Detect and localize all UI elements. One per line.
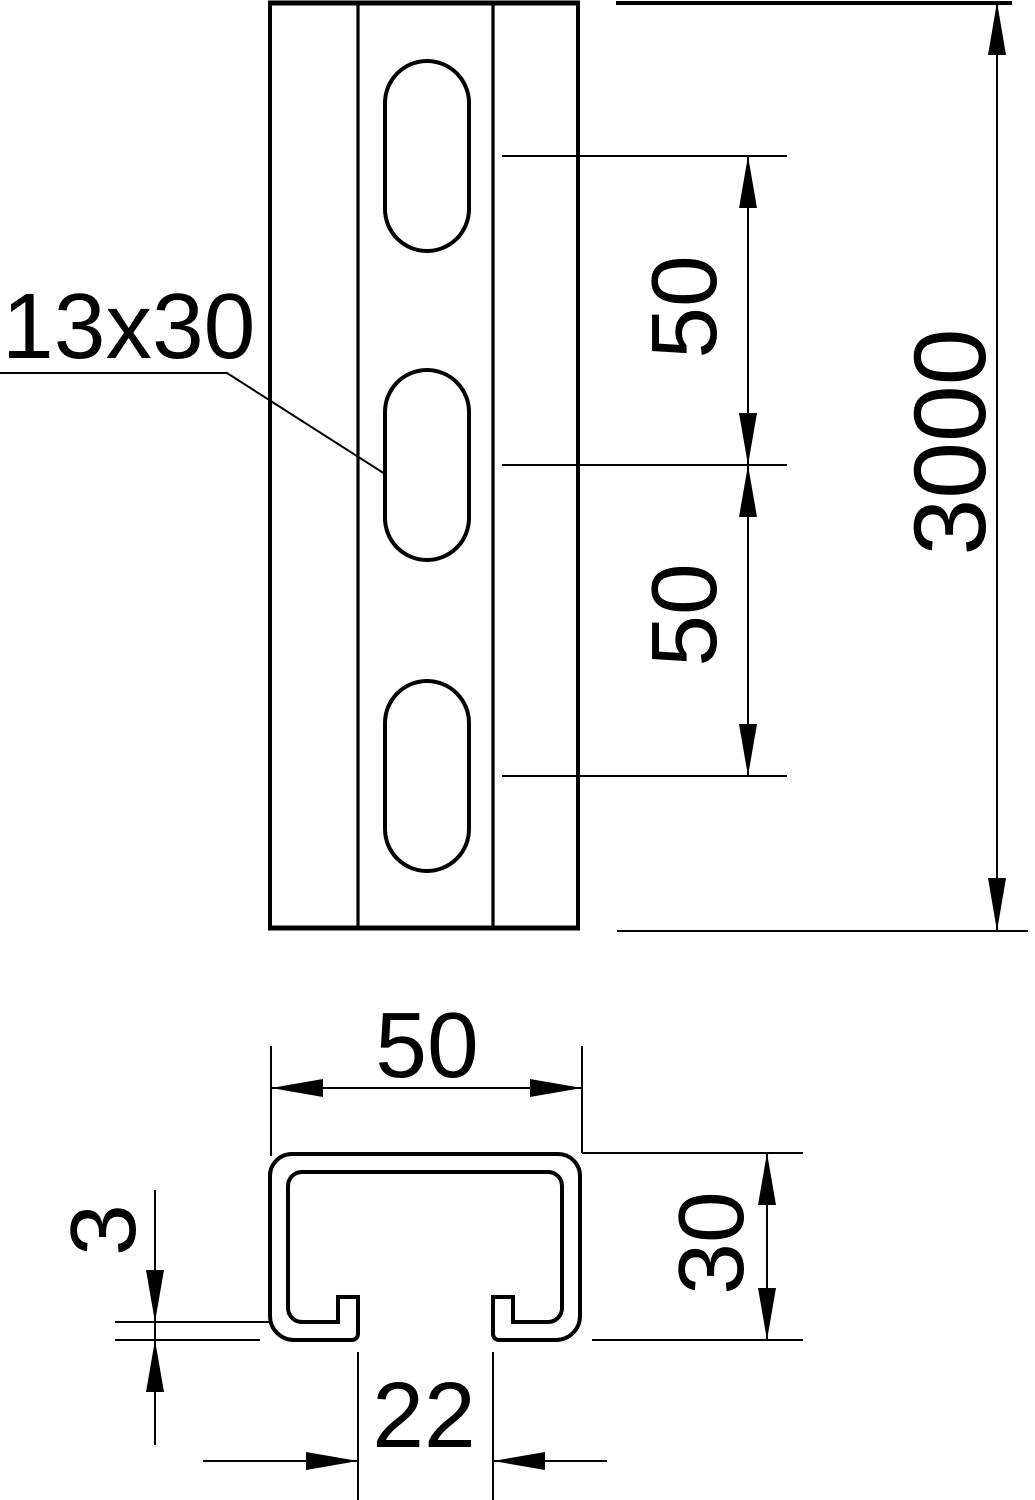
dim-profile-width: 50: [271, 993, 582, 1156]
slot-size-label: 13x30: [2, 274, 255, 378]
dim-value-profile-height: 30: [659, 1191, 763, 1294]
dim-rail-length: 3000: [616, 2, 1028, 931]
arrowhead-down: [739, 724, 757, 776]
arrowhead-up: [146, 1340, 164, 1392]
slot-hole-1: [385, 61, 469, 251]
arrowhead-up: [739, 156, 757, 208]
technical-drawing-page: 13x30 50 50 3000: [0, 0, 1035, 1500]
arrowhead-right: [306, 1452, 358, 1470]
arrowhead-down: [758, 1288, 776, 1340]
dim-slot-spacing: 50 50: [502, 156, 787, 776]
dim-value-material-thickness: 3: [51, 1204, 155, 1256]
arrowhead-up: [988, 2, 1006, 55]
dim-material-thickness: 3: [51, 1190, 272, 1445]
rail-dimension-drawing: 13x30 50 50 3000: [0, 0, 1035, 1500]
dim-value-spacing-lower: 50: [632, 563, 736, 666]
dim-value-spacing-upper: 50: [632, 255, 736, 358]
arrowhead-left: [271, 1079, 323, 1097]
section-view: 50 30 22: [51, 993, 803, 1500]
slot-hole-3: [385, 681, 469, 871]
dim-value-profile-width: 50: [375, 993, 478, 1097]
slot-size-callout: 13x30: [0, 274, 385, 474]
arrowhead-right: [530, 1079, 582, 1097]
profile-cross-section: [270, 1154, 580, 1340]
arrowhead-left: [493, 1452, 545, 1470]
dim-profile-height: 30: [582, 1153, 803, 1340]
arrowhead-down: [146, 1270, 164, 1322]
dim-value-opening-width: 22: [372, 1363, 475, 1467]
slot-hole-2: [385, 370, 469, 560]
front-view: 13x30 50 50 3000: [0, 1, 1028, 931]
dim-value-rail-length: 3000: [893, 329, 1007, 556]
slot-leader-line: [0, 373, 385, 474]
arrowhead-up: [739, 465, 757, 517]
arrowhead-down: [739, 413, 757, 465]
slotted-holes: [385, 61, 469, 871]
dim-opening-width: 22: [203, 1352, 607, 1500]
arrowhead-down: [988, 878, 1006, 931]
